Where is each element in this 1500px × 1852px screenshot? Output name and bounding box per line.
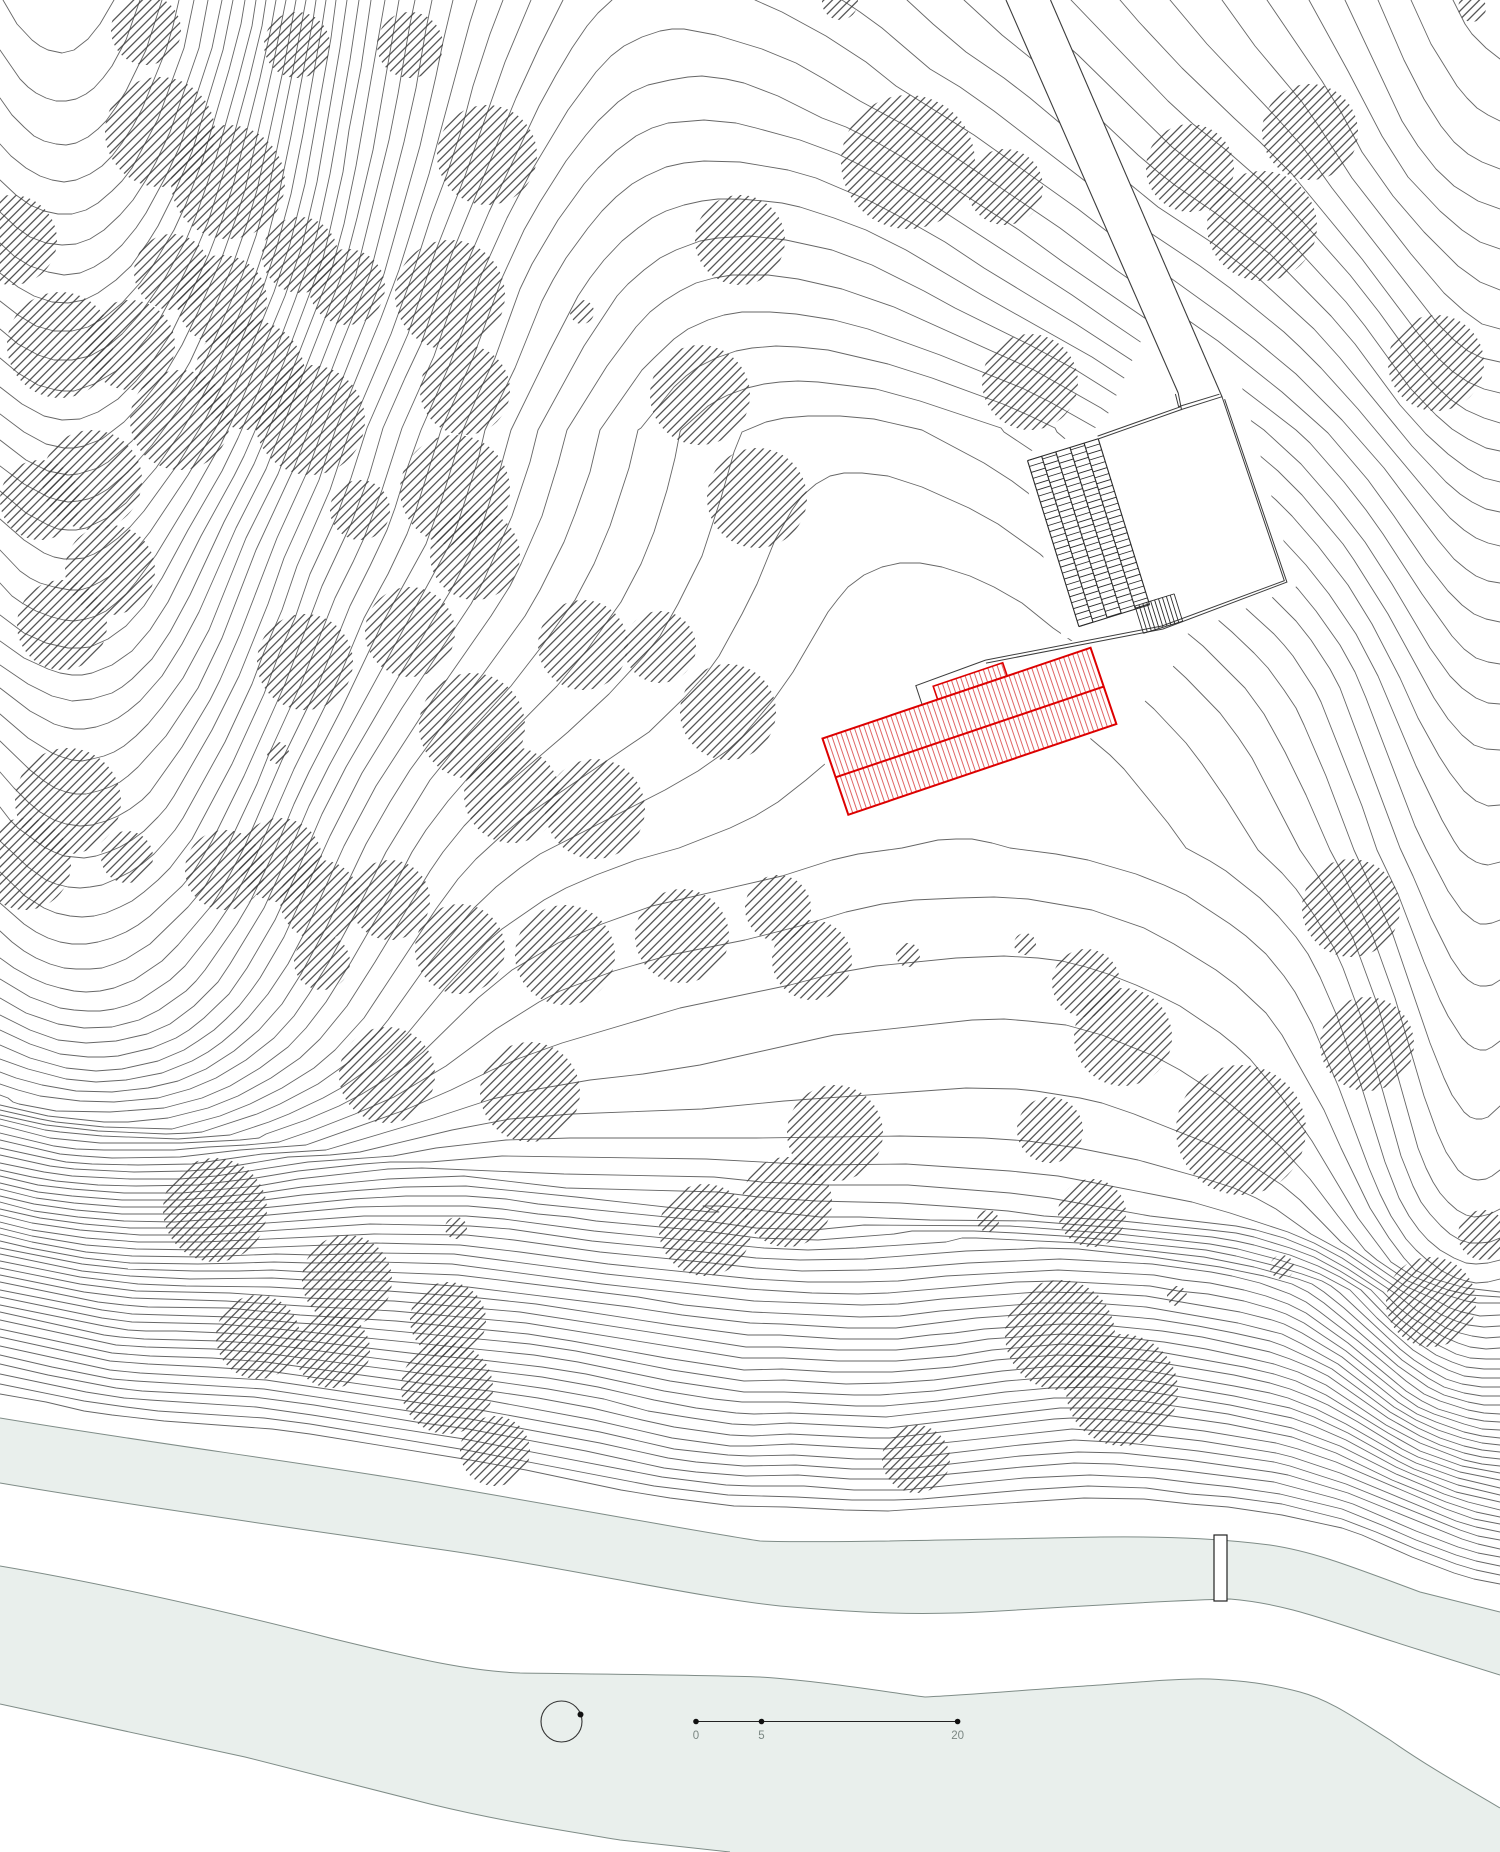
svg-text:0: 0: [693, 1730, 699, 1742]
svg-text:5: 5: [758, 1730, 764, 1742]
svg-text:20: 20: [951, 1730, 964, 1742]
